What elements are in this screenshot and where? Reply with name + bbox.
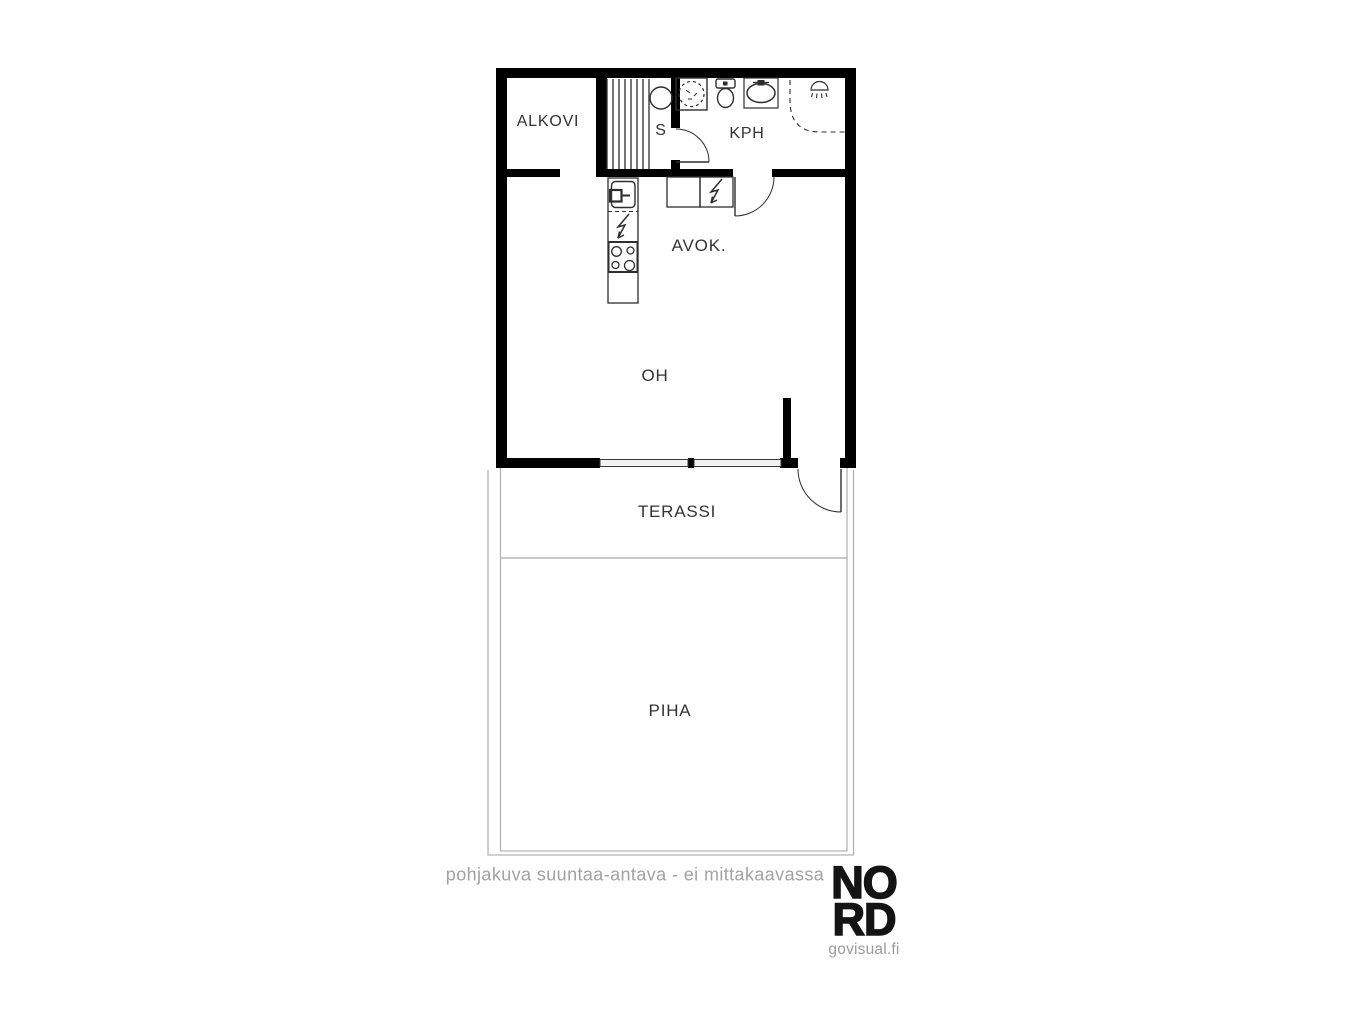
bathroom-sink-icon	[744, 78, 778, 108]
room-label-avok: AVOK.	[672, 236, 727, 256]
wall-top	[496, 68, 856, 78]
nord-logo-site: govisual.fi	[822, 941, 906, 959]
yard-outer-fence	[488, 470, 854, 855]
wall-kph-bottom-right	[772, 169, 856, 177]
wall-kitchen-top	[600, 169, 733, 177]
kitchen-sink-icon	[610, 182, 635, 208]
room-label-alkovi: ALKOVI	[517, 113, 580, 131]
yard-inner-fence	[501, 468, 848, 851]
room-label-oh: OH	[641, 366, 668, 386]
room-label-kph: KPH	[729, 125, 764, 143]
floor-plan-page: ALKOVI S KPH AVOK. OH TERASSI PIHA pohja…	[0, 0, 1366, 1025]
wall-bottom-left	[497, 458, 600, 468]
nord-logo: NO RD govisual.fi	[822, 864, 906, 959]
window-right	[694, 460, 781, 467]
window-left	[600, 460, 688, 467]
shower-icon	[790, 80, 846, 132]
bathroom-fixtures	[676, 78, 846, 132]
door-sauna	[676, 129, 709, 162]
dishwasher-icon	[618, 214, 629, 238]
wall-alkovi-sauna	[596, 78, 607, 177]
toilet-icon	[716, 79, 735, 108]
sauna-benches	[607, 79, 649, 169]
wall-bottom-doorjamb	[780, 458, 798, 468]
washing-machine-icon	[676, 78, 707, 110]
fridge-icon	[667, 177, 733, 207]
disclaimer-text: pohjakuva suuntaa-antava - ei mittakaava…	[446, 865, 824, 886]
nord-logo-line2: RD	[822, 901, 906, 938]
door-terrace	[798, 469, 841, 512]
wall-left	[496, 68, 507, 468]
doors	[676, 129, 841, 512]
kitchen-counter	[608, 178, 638, 303]
wall-alkovi-bottom	[507, 169, 560, 177]
room-label-terassi: TERASSI	[638, 502, 716, 522]
wall-bottom-corner	[840, 458, 856, 468]
interior-walls	[507, 78, 856, 459]
yard-boundary	[488, 468, 854, 855]
room-label-piha: PIHA	[649, 701, 692, 721]
wall-entry-stub	[783, 398, 791, 459]
room-label-sauna: S	[655, 122, 666, 140]
door-kph	[735, 177, 774, 216]
wall-right	[845, 68, 856, 468]
window-mullion	[688, 458, 694, 468]
stove-icon	[609, 242, 638, 272]
sauna-heater-icon	[650, 87, 672, 109]
